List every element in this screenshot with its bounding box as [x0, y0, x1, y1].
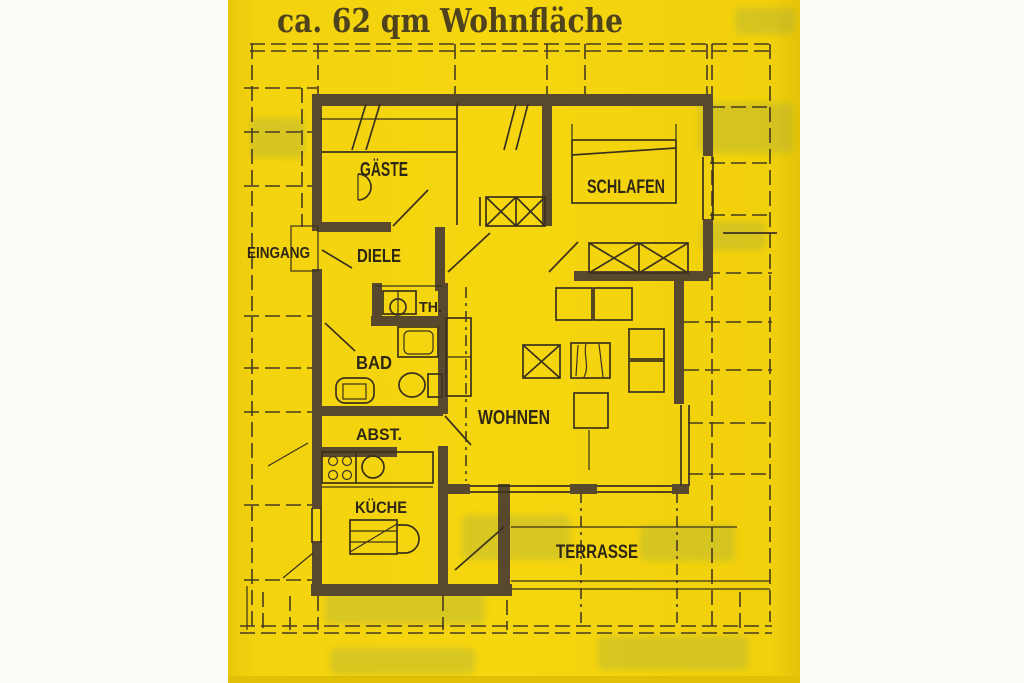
paper-bottom-edge: [228, 676, 800, 683]
room-label-terrasse: TERRASSE: [556, 542, 638, 563]
room-label-kueche: KÜCHE: [355, 498, 407, 517]
room-label-eingang: EINGANG: [247, 245, 310, 262]
room-label-th: TH.: [419, 299, 442, 316]
room-label-schlafen: SCHLAFEN: [587, 177, 665, 198]
room-label-gaeste: GÄSTE: [360, 158, 408, 181]
scanned-floorplan-page: ca. 62 qm Wohnfläche GÄSTE SCHLAFEN EING…: [0, 0, 1024, 683]
floor-plan-svg: ca. 62 qm Wohnfläche GÄSTE SCHLAFEN EING…: [0, 0, 1024, 683]
room-label-wohnen: WOHNEN: [478, 407, 550, 429]
plan-title: ca. 62 qm Wohnfläche: [277, 1, 623, 40]
room-label-bad: BAD: [356, 353, 392, 373]
room-label-abst: ABST.: [356, 425, 402, 444]
room-label-diele: DIELE: [357, 246, 401, 266]
